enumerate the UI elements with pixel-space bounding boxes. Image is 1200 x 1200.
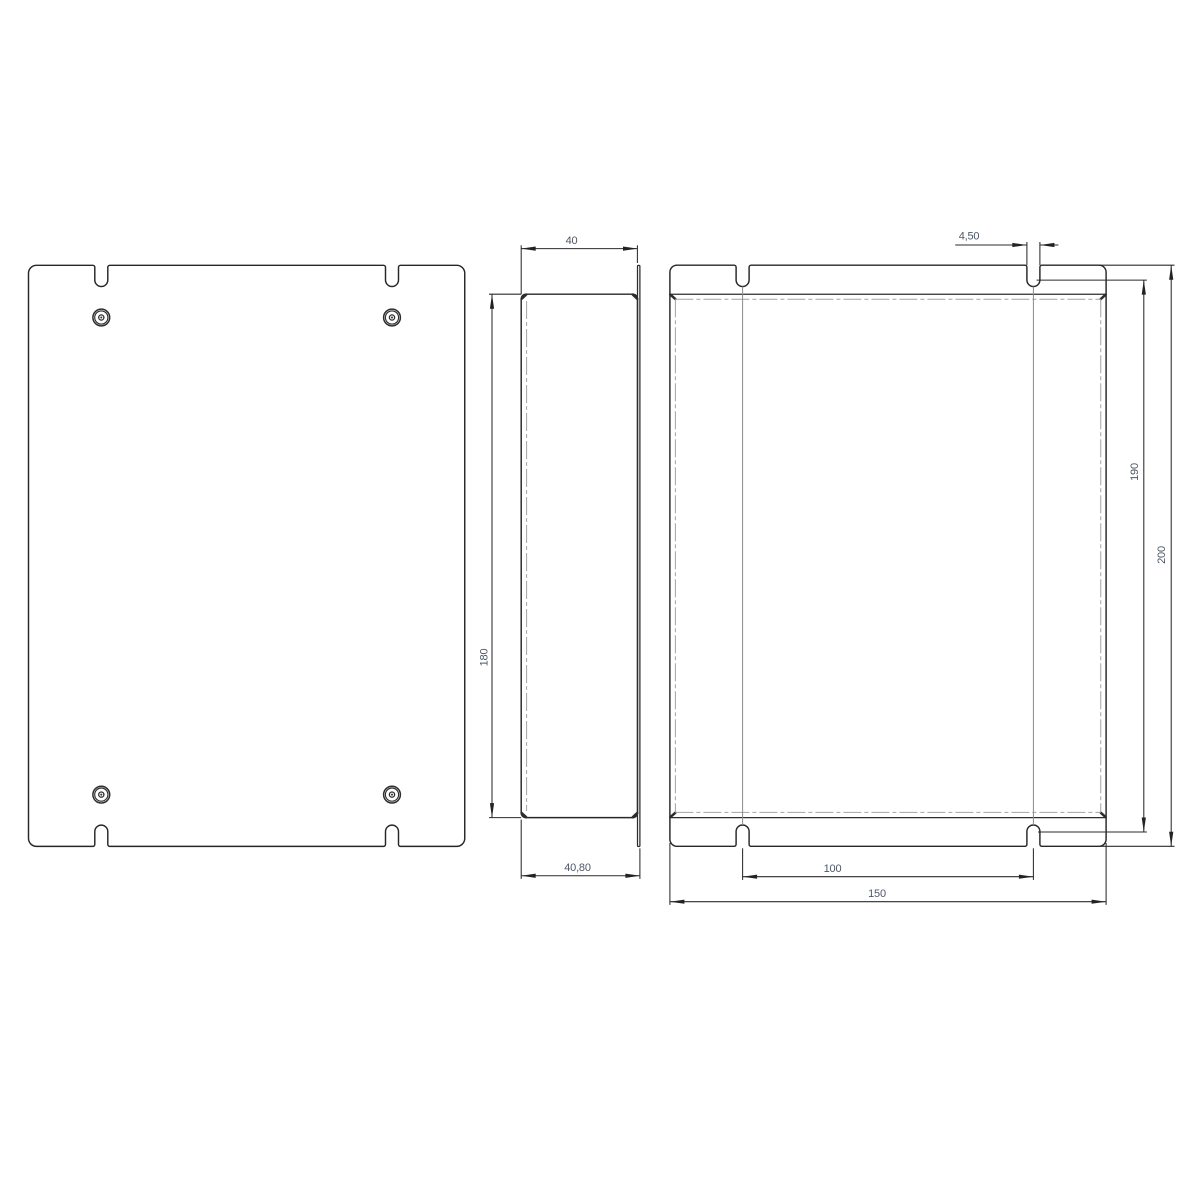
svg-text:4,50: 4,50 [959, 231, 980, 243]
svg-text:100: 100 [824, 863, 842, 875]
svg-text:200: 200 [1156, 546, 1168, 564]
svg-text:150: 150 [868, 888, 886, 900]
svg-text:40,80: 40,80 [564, 862, 591, 874]
svg-text:190: 190 [1129, 463, 1141, 481]
svg-text:40: 40 [566, 235, 578, 247]
svg-text:180: 180 [478, 649, 490, 667]
